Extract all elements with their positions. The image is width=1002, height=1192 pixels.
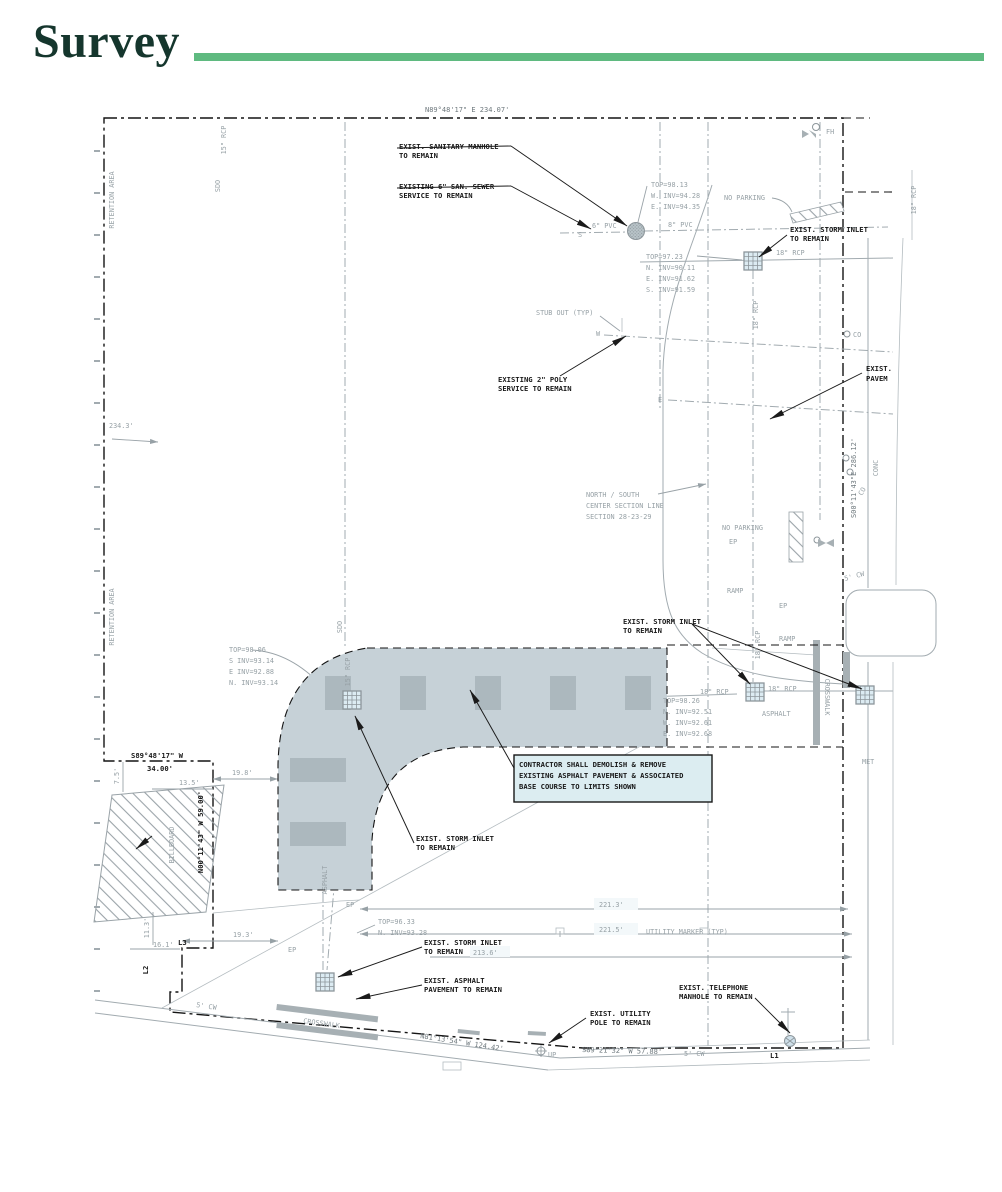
cleanout-symbol	[844, 331, 850, 337]
ep-label: EP	[288, 946, 296, 954]
invert-table: TOP=98.06	[229, 646, 266, 654]
dimension: 19.3'	[233, 931, 253, 939]
pipe-label: 18" RCP	[752, 301, 760, 330]
dimension: 234.3'	[109, 422, 134, 430]
fire-hydrant-symbol	[802, 124, 820, 139]
callout: EXIST.	[866, 364, 892, 373]
callout: EXIST. STORM INLET	[416, 834, 495, 843]
utility-linework	[95, 118, 936, 1070]
svg-text:BASE COURSE TO LIMITS SHOWN: BASE COURSE TO LIMITS SHOWN	[519, 782, 636, 791]
contractor-note-box: CONTRACTOR SHALL DEMOLISH & REMOVE EXIST…	[514, 755, 712, 802]
pipe-label: 15" RCP	[344, 658, 352, 687]
cleanout-label: CO	[857, 486, 868, 497]
utility-pole-label: UP	[548, 1051, 556, 1059]
pipe-label: 18" RCP	[768, 685, 797, 693]
storm-inlet-symbol	[343, 691, 361, 709]
svg-text:E: E	[658, 396, 662, 404]
pipe-label: 18" RCP	[754, 631, 762, 660]
storm-inlet-symbol	[316, 973, 334, 991]
invert-table: TOP=97.23	[646, 253, 683, 261]
svg-text:E. INV=94.35: E. INV=94.35	[651, 203, 700, 211]
ramp-label: RAMP	[779, 635, 795, 643]
svg-text:TO REMAIN: TO REMAIN	[623, 626, 662, 635]
survey-drawing: N89°48'17" E 234.07' TOP=98.13 W. INV=94…	[0, 0, 1002, 1192]
fire-hydrant-label: FH	[826, 128, 834, 136]
pipe-label: 18" RCP	[700, 688, 729, 696]
parcel-area	[104, 118, 843, 1048]
dimension: 16.1'	[153, 941, 173, 949]
pipe-label: 15" RCP	[220, 126, 228, 155]
cw-label: 5' CW	[196, 1001, 218, 1012]
svg-text:N. INV=92.51: N. INV=92.51	[663, 708, 712, 716]
svg-text:S INV=93.14: S INV=93.14	[229, 657, 274, 665]
valve-symbol	[814, 537, 834, 547]
conc-label: CONC	[872, 460, 880, 476]
no-parking-label: NO PARKING	[724, 194, 765, 202]
svg-text:TO REMAIN: TO REMAIN	[416, 843, 455, 852]
ep-label: EP	[779, 602, 787, 610]
retention-area-label: RETENTION AREA	[108, 171, 116, 228]
ramp-label: RAMP	[727, 587, 743, 595]
symbols	[316, 124, 874, 1058]
dimension: 19.8'	[232, 769, 252, 777]
svg-text:E. INV=91.62: E. INV=91.62	[646, 275, 695, 283]
svg-text:SERVICE TO REMAIN: SERVICE TO REMAIN	[399, 191, 473, 200]
gray-labels: N89°48'17" E 234.07' TOP=98.13 W. INV=94…	[108, 106, 918, 1059]
svg-text:W: W	[596, 330, 601, 338]
no-parking-label: NO PARKING	[722, 524, 763, 532]
svg-text:POLE TO REMAIN: POLE TO REMAIN	[590, 1018, 651, 1027]
billboard-label: BILLBOARD	[168, 827, 176, 864]
dimension: 11.3'	[143, 918, 151, 938]
asphalt-label: ASPHALT	[321, 866, 329, 895]
crosswalk-label: CROSSWALK	[823, 679, 831, 717]
svg-text:CENTER SECTION LINE: CENTER SECTION LINE	[586, 502, 664, 510]
line-label: L3	[178, 938, 187, 947]
svg-text:N. INV=93.28: N. INV=93.28	[378, 929, 427, 937]
bearing-east: S00°11'43"E 286.12'	[850, 438, 858, 518]
svg-text:TO REMAIN: TO REMAIN	[424, 947, 463, 956]
cleanout-label: CO	[853, 331, 861, 339]
callout: EXIST. ASPHALT	[424, 976, 485, 985]
retention-area-label: RETENTION AREA	[108, 588, 116, 645]
svg-text:S: S	[578, 231, 582, 239]
svg-text:PAVEM: PAVEM	[866, 374, 888, 383]
pipe-label: 8" PVC	[668, 221, 693, 229]
telephone-manhole-symbol	[785, 1036, 796, 1047]
invert-table: TOP=98.26	[663, 697, 700, 705]
svg-text:E. INV=92.68: E. INV=92.68	[663, 730, 712, 738]
callout: EXIST. STORM INLET	[424, 938, 503, 947]
survey-page: Survey	[0, 0, 1002, 1192]
callout: EXIST. TELEPHONE	[679, 983, 748, 992]
invert-table: TOP=96.33	[378, 918, 415, 926]
pipe-label: 18" RCP	[910, 186, 918, 215]
svg-text:EXISTING ASPHALT PAVEMENT & AS: EXISTING ASPHALT PAVEMENT & ASSOCIATED	[519, 771, 683, 780]
storm-inlet-symbol	[856, 686, 874, 704]
svg-text:W. INV=94.28: W. INV=94.28	[651, 192, 700, 200]
svg-text:MANHOLE TO REMAIN: MANHOLE TO REMAIN	[679, 992, 753, 1001]
storm-inlet-symbol	[744, 252, 762, 270]
pipe-label: SDO	[214, 180, 222, 192]
notch-bearing: S89°48'17" W	[131, 751, 184, 760]
met-label: MET	[862, 758, 874, 766]
bearing-south-a: N81°13'54" W 124.42'	[420, 1032, 505, 1053]
line-label: L2	[141, 966, 150, 975]
stub-out-label: STUB OUT (TYP)	[536, 309, 593, 317]
dimension: 221.5'	[599, 926, 624, 934]
cleanout-symbol	[843, 455, 849, 461]
black-callouts: EXIST. SANITARY MANHOLE TO REMAIN EXISTI…	[131, 142, 892, 1060]
dimension: 7.5'	[113, 768, 121, 784]
pipe-label: 6" PVC	[592, 222, 617, 230]
callout: EXISTING 6" SAN. SEWER	[399, 182, 495, 191]
svg-text:CONTRACTOR SHALL DEMOLISH & RE: CONTRACTOR SHALL DEMOLISH & REMOVE	[519, 760, 666, 769]
svg-text:TO REMAIN: TO REMAIN	[790, 234, 829, 243]
pipe-label: SDO	[336, 621, 344, 633]
svg-text:SERVICE TO REMAIN: SERVICE TO REMAIN	[498, 384, 572, 393]
dimension: 213.6'	[473, 949, 498, 957]
pipe-label: 18" RCP	[776, 249, 805, 257]
storm-inlet-symbol	[746, 683, 764, 701]
svg-text:E INV=92.88: E INV=92.88	[229, 668, 274, 676]
svg-text:S. INV=91.59: S. INV=91.59	[646, 286, 695, 294]
ep-label: EP	[729, 538, 737, 546]
svg-text:TO REMAIN: TO REMAIN	[399, 151, 438, 160]
callout: EXISTING 2" POLY	[498, 375, 568, 384]
bearing-north: N89°48'17" E 234.07'	[425, 106, 509, 114]
cw-label: 5' CW	[843, 570, 866, 583]
sanitary-manhole-symbol	[628, 223, 645, 240]
notch-side-bearing: N00°11'43" W 59.00'	[196, 791, 205, 873]
line-label: L1	[770, 1051, 779, 1060]
callout: EXIST. UTILITY	[590, 1009, 651, 1018]
section-line-note: NORTH / SOUTH	[586, 491, 639, 499]
svg-text:PAVEMENT TO REMAIN: PAVEMENT TO REMAIN	[424, 985, 502, 994]
svg-text:N. INV=90.11: N. INV=90.11	[646, 264, 695, 272]
ep-label: EP	[346, 901, 354, 909]
dimension: 13.5'	[179, 779, 199, 787]
notch-length: 34.00'	[147, 764, 173, 773]
asphalt-label: ASPHALT	[762, 710, 791, 718]
callout: EXIST. SANITARY MANHOLE	[399, 142, 499, 151]
callout: EXIST. STORM INLET	[623, 617, 702, 626]
svg-text:W. INV=92.61: W. INV=92.61	[663, 719, 712, 727]
dimension: 221.3'	[599, 901, 624, 909]
svg-text:SECTION 28-23-29: SECTION 28-23-29	[586, 513, 651, 521]
callout: EXIST. STORM INLET	[790, 225, 869, 234]
utility-marker-note: UTILITY MARKER (TYP)	[646, 928, 728, 936]
invert-table: TOP=98.13	[651, 181, 688, 189]
svg-text:N. INV=93.14: N. INV=93.14	[229, 679, 278, 687]
cw-label: 5' CW	[684, 1050, 705, 1058]
bearing-south-b: S89°21'32" W 57.88'	[582, 1046, 662, 1056]
